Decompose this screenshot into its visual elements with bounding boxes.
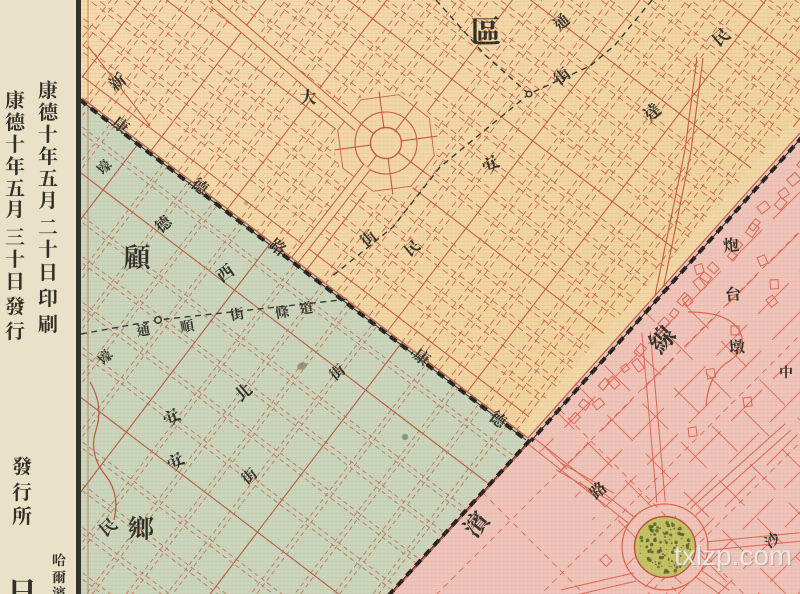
- svg-text:txlzp.com: txlzp.com: [674, 540, 792, 571]
